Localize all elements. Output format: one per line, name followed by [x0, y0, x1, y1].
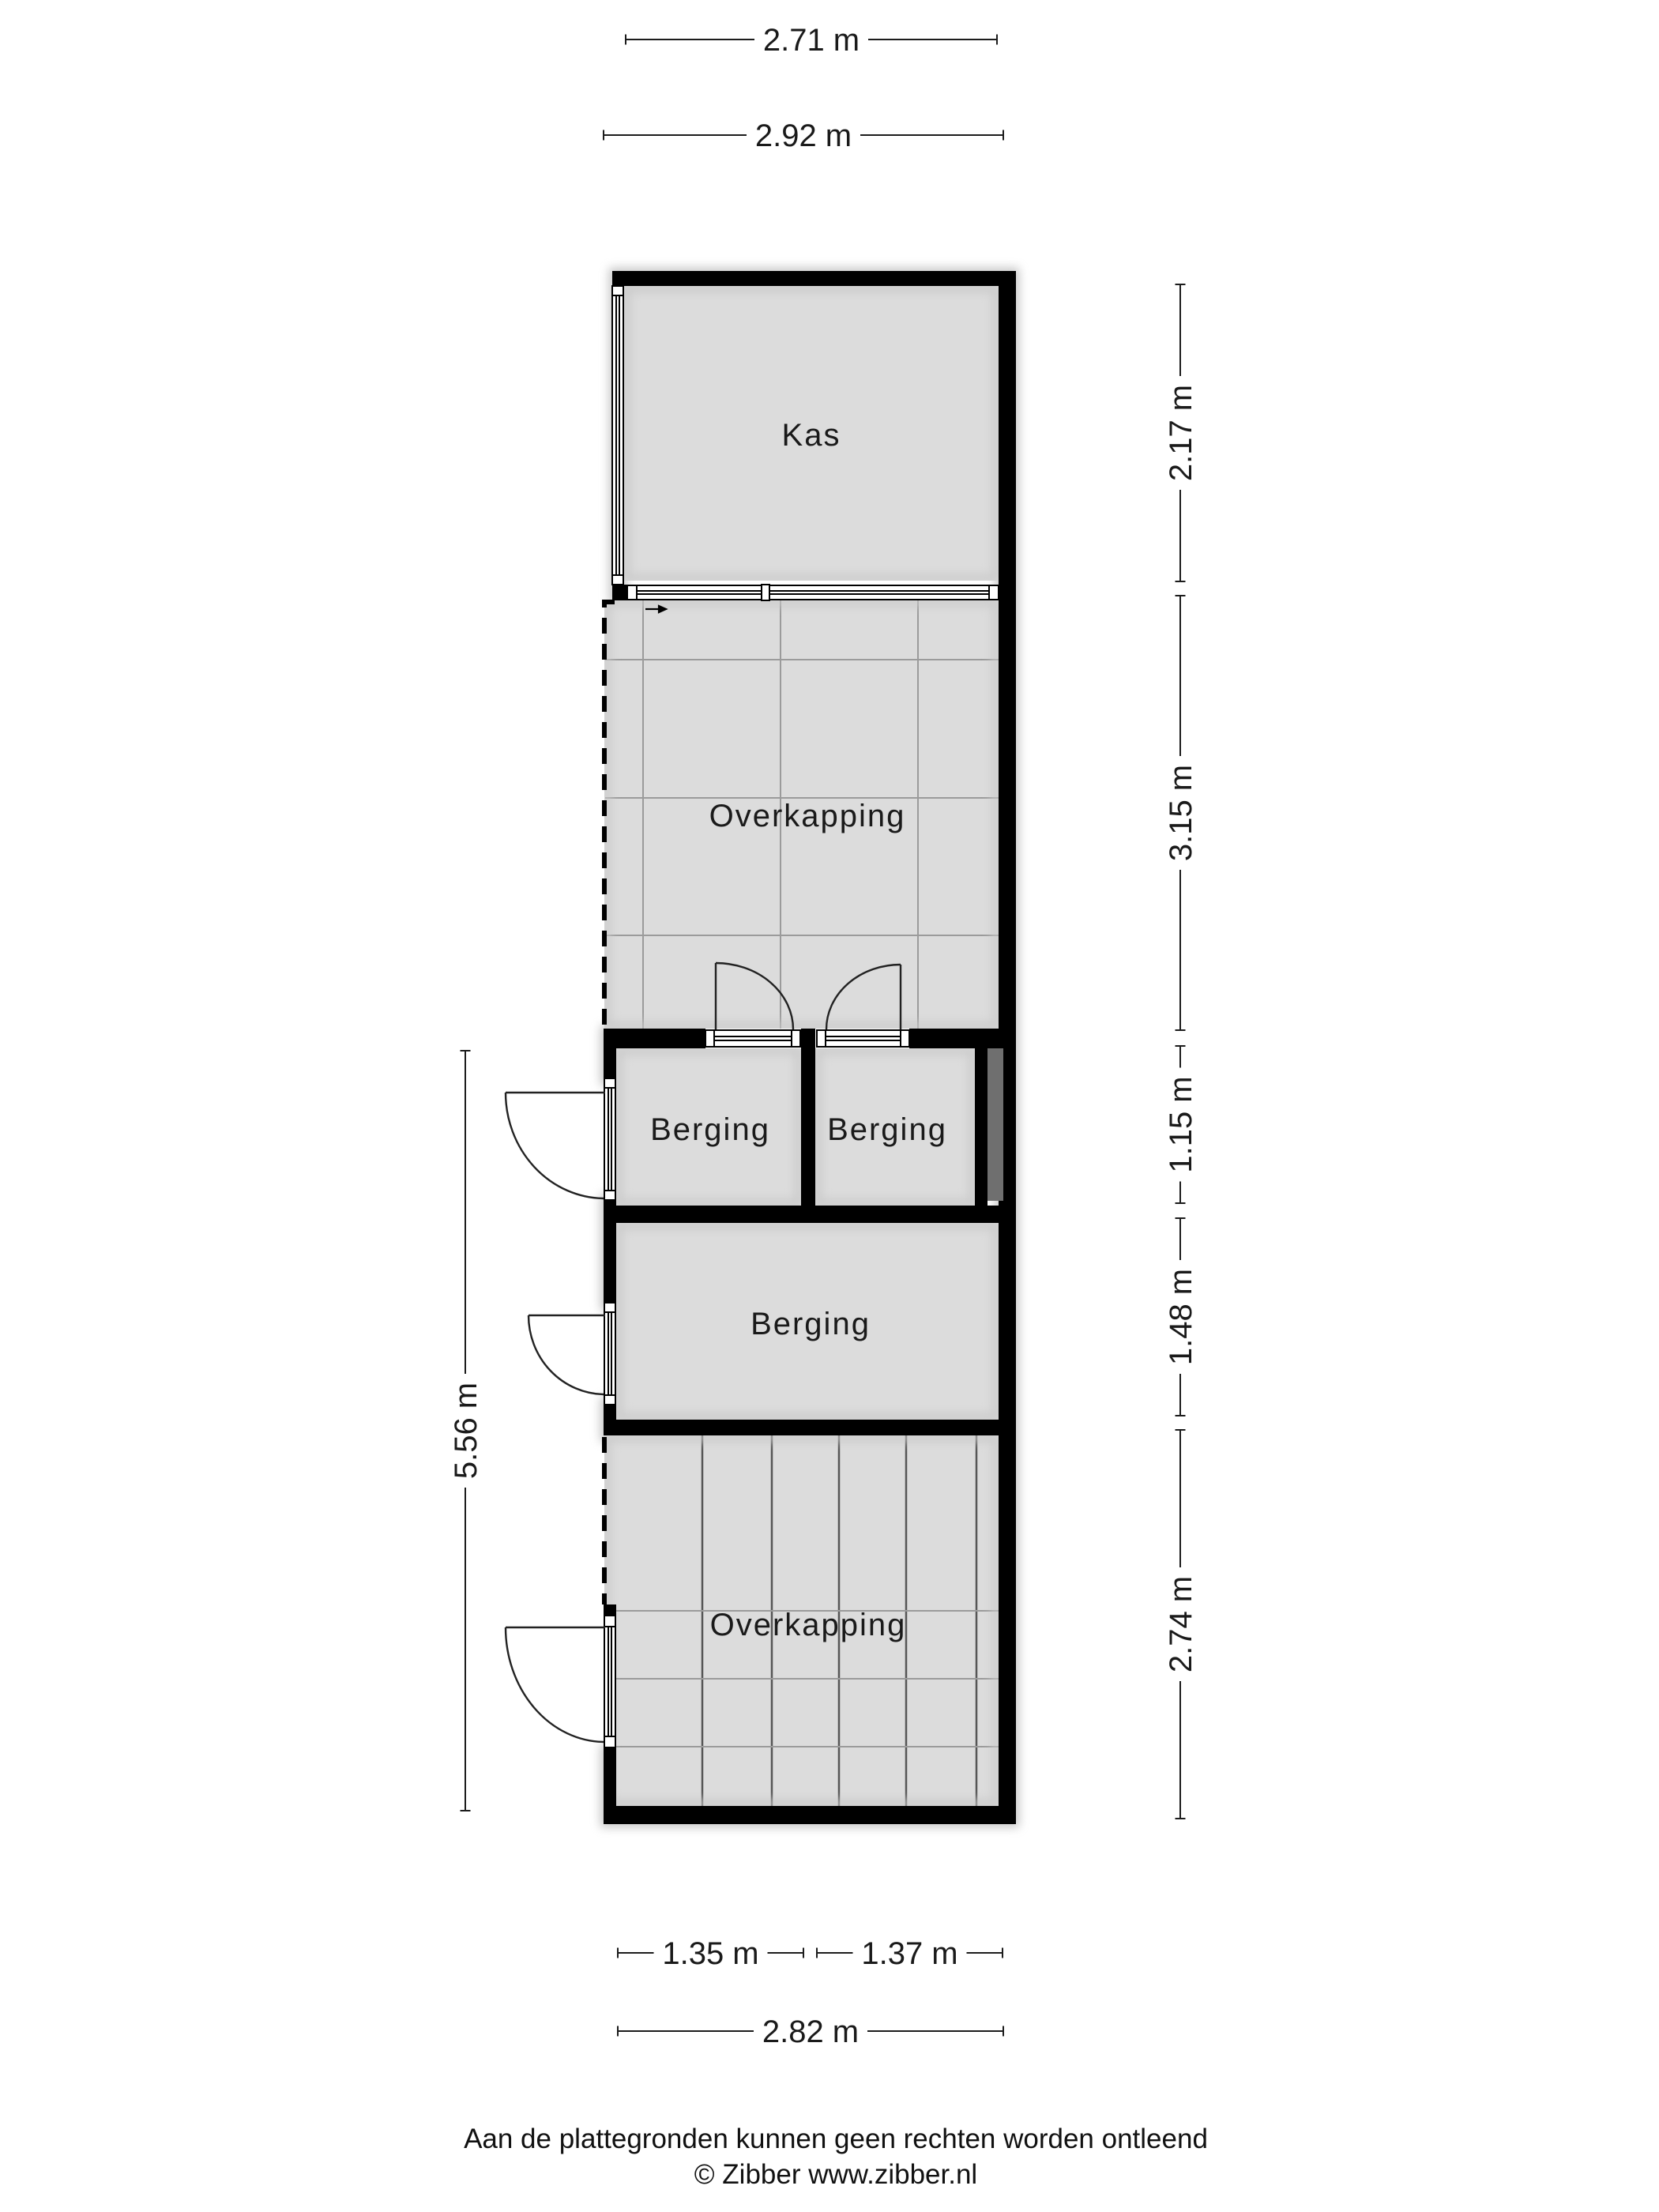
- svg-text:Aan de plattegronden kunnen ge: Aan de plattegronden kunnen geen rechten…: [464, 2124, 1208, 2154]
- svg-text:1.15 m: 1.15 m: [1164, 1076, 1198, 1172]
- svg-text:1.48 m: 1.48 m: [1164, 1269, 1198, 1365]
- svg-text:2.71 m: 2.71 m: [763, 23, 860, 58]
- svg-text:1.37 m: 1.37 m: [861, 1936, 957, 1971]
- svg-text:Overkapping: Overkapping: [709, 799, 906, 833]
- svg-text:2.17 m: 2.17 m: [1164, 385, 1198, 481]
- svg-text:1.35 m: 1.35 m: [662, 1936, 758, 1971]
- svg-text:Overkapping: Overkapping: [710, 1608, 907, 1642]
- svg-text:2.92 m: 2.92 m: [755, 118, 852, 153]
- svg-text:2.74 m: 2.74 m: [1164, 1576, 1198, 1672]
- svg-text:Berging: Berging: [650, 1112, 770, 1147]
- svg-text:5.56 m: 5.56 m: [449, 1382, 483, 1479]
- svg-text:Berging: Berging: [827, 1112, 947, 1147]
- svg-text:Berging: Berging: [750, 1307, 871, 1341]
- svg-text:© Zibber www.zibber.nl: © Zibber www.zibber.nl: [694, 2159, 977, 2190]
- svg-text:Kas: Kas: [782, 418, 841, 453]
- svg-text:3.15 m: 3.15 m: [1164, 765, 1198, 861]
- svg-text:2.82 m: 2.82 m: [762, 2014, 859, 2049]
